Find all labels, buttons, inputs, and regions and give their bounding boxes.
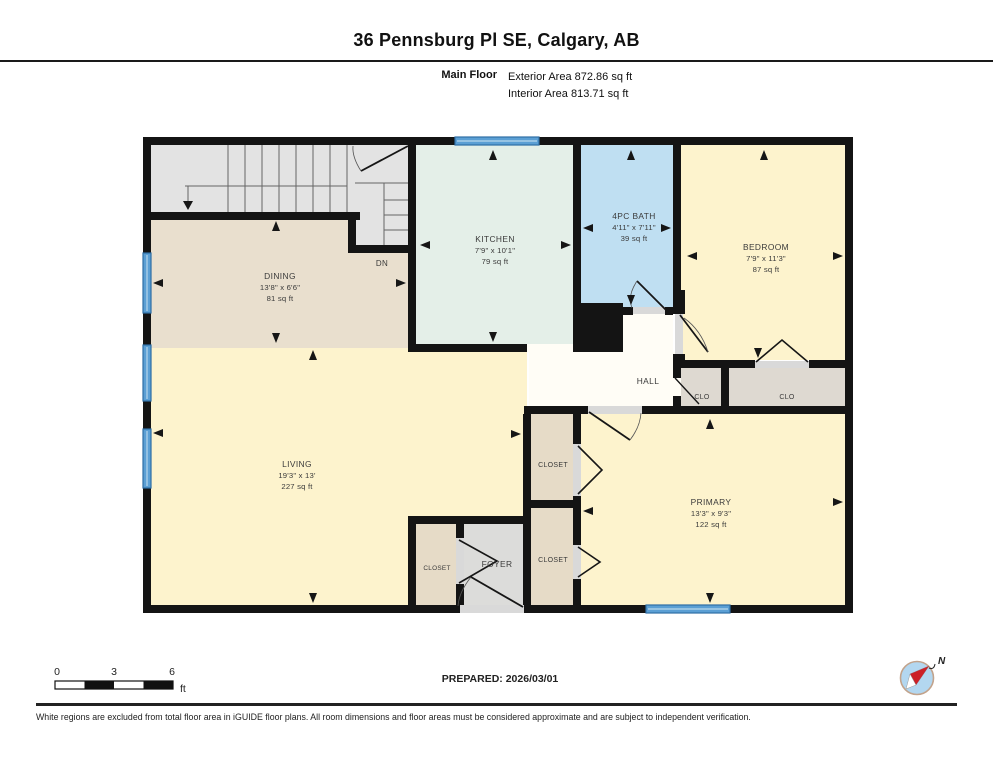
scale-tick-0: 0	[54, 666, 60, 678]
svg-text:81 sq ft: 81 sq ft	[267, 294, 294, 303]
room-stairs	[147, 141, 355, 216]
hall-kitchen-opening	[527, 344, 573, 352]
closet-lower-label: CLOSET	[538, 557, 568, 564]
svg-text:4'11" x 7'11": 4'11" x 7'11"	[612, 223, 656, 232]
compass-icon: N	[901, 656, 947, 695]
svg-text:KITCHEN: KITCHEN	[475, 234, 515, 244]
floor-plan-page: 36 Pennsburg Pl SE, Calgary, AB Main Flo…	[0, 0, 993, 768]
svg-text:PRIMARY: PRIMARY	[691, 497, 732, 507]
svg-text:DINING: DINING	[264, 271, 296, 281]
scale-tick-6: 6	[169, 666, 175, 678]
window-primary	[646, 605, 730, 613]
scale-tick-3: 3	[111, 666, 117, 678]
svg-text:7'9" x 10'1": 7'9" x 10'1"	[475, 246, 515, 255]
room-fills	[147, 141, 845, 609]
footer-divider	[36, 703, 957, 706]
svg-text:122 sq ft: 122 sq ft	[695, 520, 727, 529]
interior-area: Interior Area 813.71 sq ft	[508, 86, 632, 103]
floor-label: Main Floor	[0, 69, 497, 81]
scale-bar: 0 3 6 ft	[54, 666, 186, 695]
compass-n-label: N	[938, 656, 946, 667]
footer-disclaimer: White regions are excluded from total fl…	[36, 712, 751, 722]
closet-foyer-label: CLOSET	[423, 565, 450, 572]
page-title: 36 Pennsburg Pl SE, Calgary, AB	[0, 30, 993, 51]
clo-hall-label: CLO	[694, 394, 710, 401]
foyer-label: FOYER	[482, 559, 513, 569]
svg-text:BEDROOM: BEDROOM	[743, 242, 789, 252]
window-dining	[143, 253, 151, 313]
header-divider	[0, 60, 993, 62]
window-kitchen	[455, 137, 539, 145]
floor-plan-drawing: DINING 13'8" x 6'6" 81 sq ft KITCHEN 7'9…	[0, 130, 993, 768]
svg-text:39 sq ft: 39 sq ft	[621, 234, 648, 243]
svg-text:79 sq ft: 79 sq ft	[482, 257, 509, 266]
primary-label: PRIMARY 13'3" x 9'3" 122 sq ft	[691, 497, 732, 529]
svg-text:227 sq ft: 227 sq ft	[281, 482, 313, 491]
closet-upper-label: CLOSET	[538, 462, 568, 469]
svg-text:13'3" x 9'3": 13'3" x 9'3"	[691, 509, 731, 518]
room-closet-upper	[531, 414, 573, 500]
svg-text:7'9" x 11'3": 7'9" x 11'3"	[746, 254, 786, 263]
prepared-date: PREPARED: 2026/03/01	[442, 673, 559, 685]
area-summary: Exterior Area 872.86 sq ft Interior Area…	[508, 69, 632, 103]
svg-text:19'3" x 13': 19'3" x 13'	[278, 471, 316, 480]
svg-text:4PC BATH: 4PC BATH	[612, 211, 656, 221]
window-living-lower	[143, 429, 151, 488]
scale-unit: ft	[180, 683, 186, 695]
clo-bedroom-label: CLO	[779, 394, 795, 401]
hall-label: HALL	[637, 376, 660, 386]
dn-label: DN	[376, 259, 388, 268]
svg-text:13'8" x 6'6": 13'8" x 6'6"	[260, 283, 300, 292]
living-label: LIVING 19'3" x 13' 227 sq ft	[278, 459, 316, 491]
window-living-upper	[143, 345, 151, 401]
exterior-area: Exterior Area 872.86 sq ft	[508, 69, 632, 86]
svg-text:LIVING: LIVING	[282, 459, 312, 469]
svg-text:87 sq ft: 87 sq ft	[753, 265, 780, 274]
